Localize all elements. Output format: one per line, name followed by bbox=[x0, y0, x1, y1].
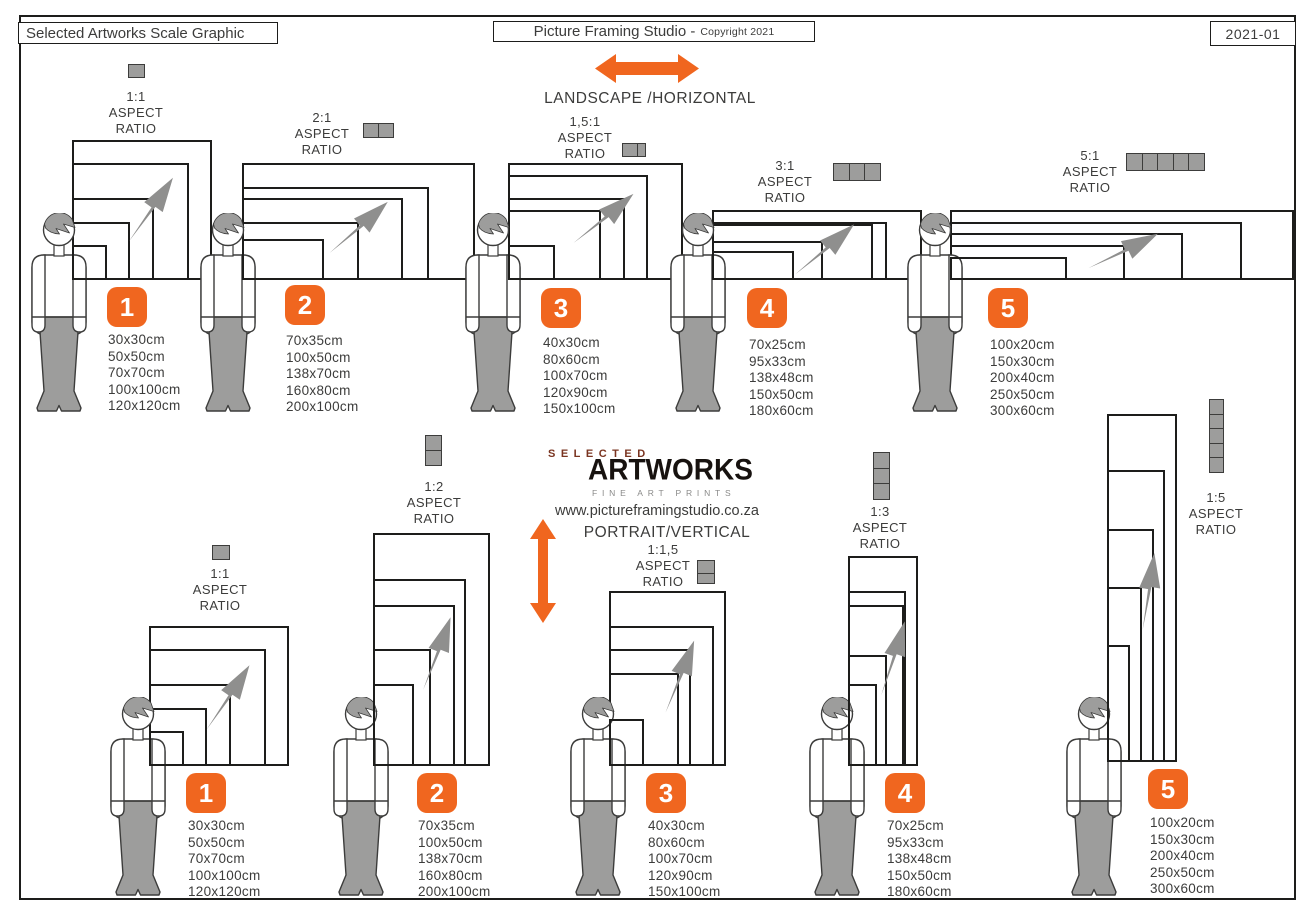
size-item: 70x35cm bbox=[418, 818, 491, 835]
ratio-value: 3:1 bbox=[735, 158, 835, 174]
aspect-ratio-icon bbox=[425, 435, 442, 466]
size-item: 150x30cm bbox=[990, 354, 1055, 371]
group-number-badge: 2 bbox=[285, 285, 325, 325]
size-item: 95x33cm bbox=[749, 354, 814, 371]
ratio-word: RATIO bbox=[830, 536, 930, 552]
size-item: 120x120cm bbox=[188, 884, 261, 901]
frame-rect bbox=[1107, 645, 1130, 762]
size-list: 30x30cm50x50cm70x70cm100x100cm120x120cm bbox=[108, 332, 181, 415]
aspect-word: ASPECT bbox=[830, 520, 930, 536]
size-item: 100x70cm bbox=[543, 368, 616, 385]
size-item: 138x48cm bbox=[887, 851, 952, 868]
size-item: 180x60cm bbox=[749, 403, 814, 420]
size-item: 100x100cm bbox=[108, 382, 181, 399]
size-item: 30x30cm bbox=[188, 818, 261, 835]
ratio-value: 1:1 bbox=[170, 566, 270, 582]
studio-title-box: Picture Framing Studio - Copyright 2021 bbox=[493, 21, 815, 42]
size-list: 100x20cm150x30cm200x40cm250x50cm300x60cm bbox=[990, 337, 1055, 420]
size-item: 50x50cm bbox=[188, 835, 261, 852]
size-item: 150x100cm bbox=[543, 401, 616, 418]
ratio-word: RATIO bbox=[1040, 180, 1140, 196]
size-list: 30x30cm50x50cm70x70cm100x100cm120x120cm bbox=[188, 818, 261, 901]
frame-rect bbox=[609, 719, 644, 766]
size-item: 70x70cm bbox=[108, 365, 181, 382]
size-list: 40x30cm80x60cm100x70cm120x90cm150x100cm bbox=[648, 818, 721, 901]
logo-selected: SELECTED bbox=[548, 448, 651, 460]
size-item: 100x100cm bbox=[188, 868, 261, 885]
size-item: 120x120cm bbox=[108, 398, 181, 415]
ratio-word: RATIO bbox=[170, 598, 270, 614]
aspect-word: ASPECT bbox=[384, 495, 484, 511]
size-item: 80x60cm bbox=[648, 835, 721, 852]
size-item: 150x30cm bbox=[1150, 832, 1215, 849]
aspect-ratio-icon bbox=[212, 545, 230, 560]
group-number-badge: 1 bbox=[107, 287, 147, 327]
size-item: 100x20cm bbox=[990, 337, 1055, 354]
aspect-word: ASPECT bbox=[170, 582, 270, 598]
person-figure bbox=[900, 213, 970, 413]
size-item: 160x80cm bbox=[286, 383, 359, 400]
aspect-word: ASPECT bbox=[86, 105, 186, 121]
portrait-direction-arrow-icon bbox=[528, 517, 558, 625]
aspect-word: ASPECT bbox=[535, 130, 635, 146]
size-list: 70x35cm100x50cm138x70cm160x80cm200x100cm bbox=[286, 333, 359, 416]
frame-rect bbox=[373, 684, 414, 766]
page-title: Selected Artworks Scale Graphic bbox=[26, 25, 244, 42]
aspect-word: ASPECT bbox=[1166, 506, 1266, 522]
portrait-section-label: PORTRAIT/VERTICAL bbox=[557, 524, 777, 542]
ratio-word: RATIO bbox=[384, 511, 484, 527]
ratio-value: 1:5 bbox=[1166, 490, 1266, 506]
aspect-ratio-icon bbox=[1209, 399, 1224, 473]
ratio-word: RATIO bbox=[1166, 522, 1266, 538]
person-figure bbox=[663, 213, 733, 413]
size-item: 200x40cm bbox=[1150, 848, 1215, 865]
ratio-value: 2:1 bbox=[272, 110, 372, 126]
size-item: 95x33cm bbox=[887, 835, 952, 852]
aspect-ratio-icon bbox=[833, 163, 881, 181]
size-item: 300x60cm bbox=[990, 403, 1055, 420]
ratio-word: RATIO bbox=[272, 142, 372, 158]
size-item: 138x70cm bbox=[286, 366, 359, 383]
size-item: 138x70cm bbox=[418, 851, 491, 868]
size-item: 50x50cm bbox=[108, 349, 181, 366]
doc-code: 2021-01 bbox=[1226, 26, 1281, 42]
frame-rect bbox=[712, 251, 794, 280]
logo-subtitle: FINE ART PRINTS bbox=[592, 488, 735, 498]
aspect-word: ASPECT bbox=[1040, 164, 1140, 180]
studio-title: Picture Framing Studio - bbox=[534, 23, 696, 40]
ratio-value: 1:1,5 bbox=[613, 542, 713, 558]
size-list: 70x25cm95x33cm138x48cm150x50cm180x60cm bbox=[887, 818, 952, 901]
frame-rect bbox=[508, 245, 555, 280]
group-number-badge: 3 bbox=[646, 773, 686, 813]
page-canvas: Selected Artworks Scale Graphic Picture … bbox=[0, 0, 1313, 921]
size-item: 100x70cm bbox=[648, 851, 721, 868]
landscape-direction-arrow-icon bbox=[593, 52, 701, 85]
ratio-word: RATIO bbox=[86, 121, 186, 137]
person-figure bbox=[103, 697, 173, 897]
ratio-word: RATIO bbox=[535, 146, 635, 162]
doc-code-box: 2021-01 bbox=[1210, 21, 1296, 46]
size-item: 150x50cm bbox=[887, 868, 952, 885]
size-list: 70x25cm95x33cm138x48cm150x50cm180x60cm bbox=[749, 337, 814, 420]
group-number-badge: 5 bbox=[1148, 769, 1188, 809]
aspect-ratio-icon bbox=[873, 452, 890, 500]
ratio-value: 5:1 bbox=[1040, 148, 1140, 164]
size-item: 300x60cm bbox=[1150, 881, 1215, 898]
group-number-badge: 4 bbox=[747, 288, 787, 328]
aspect-ratio-icon bbox=[128, 64, 145, 78]
size-item: 120x90cm bbox=[648, 868, 721, 885]
frame-rect bbox=[950, 257, 1067, 280]
size-item: 70x70cm bbox=[188, 851, 261, 868]
size-list: 70x35cm100x50cm138x70cm160x80cm200x100cm bbox=[418, 818, 491, 901]
ratio-value: 1,5:1 bbox=[535, 114, 635, 130]
size-item: 150x100cm bbox=[648, 884, 721, 901]
size-item: 180x60cm bbox=[887, 884, 952, 901]
group-number-badge: 1 bbox=[186, 773, 226, 813]
size-list: 40x30cm80x60cm100x70cm120x90cm150x100cm bbox=[543, 335, 616, 418]
group-number-badge: 5 bbox=[988, 288, 1028, 328]
size-item: 70x25cm bbox=[749, 337, 814, 354]
person-figure bbox=[458, 213, 528, 413]
ratio-value: 1:2 bbox=[384, 479, 484, 495]
size-item: 100x50cm bbox=[418, 835, 491, 852]
size-item: 150x50cm bbox=[749, 387, 814, 404]
copyright-text: Copyright 2021 bbox=[700, 26, 774, 38]
size-item: 138x48cm bbox=[749, 370, 814, 387]
size-item: 40x30cm bbox=[543, 335, 616, 352]
size-item: 160x80cm bbox=[418, 868, 491, 885]
size-item: 30x30cm bbox=[108, 332, 181, 349]
frame-rect bbox=[848, 684, 877, 766]
group-number-badge: 4 bbox=[885, 773, 925, 813]
size-item: 40x30cm bbox=[648, 818, 721, 835]
ratio-value: 1:1 bbox=[86, 89, 186, 105]
size-item: 250x50cm bbox=[990, 387, 1055, 404]
landscape-section-label: LANDSCAPE /HORIZONTAL bbox=[540, 90, 760, 108]
aspect-word: ASPECT bbox=[272, 126, 372, 142]
size-list: 100x20cm150x30cm200x40cm250x50cm300x60cm bbox=[1150, 815, 1215, 898]
aspect-word: ASPECT bbox=[613, 558, 713, 574]
size-item: 80x60cm bbox=[543, 352, 616, 369]
size-item: 120x90cm bbox=[543, 385, 616, 402]
website-url: www.pictureframingstudio.co.za bbox=[537, 503, 777, 519]
group-number-badge: 3 bbox=[541, 288, 581, 328]
frame-rect bbox=[149, 731, 184, 766]
size-item: 100x20cm bbox=[1150, 815, 1215, 832]
size-item: 200x100cm bbox=[286, 399, 359, 416]
frame-rect bbox=[72, 245, 107, 280]
ratio-word: RATIO bbox=[735, 190, 835, 206]
page-title-box: Selected Artworks Scale Graphic bbox=[18, 22, 278, 44]
group-number-badge: 2 bbox=[417, 773, 457, 813]
aspect-word: ASPECT bbox=[735, 174, 835, 190]
person-figure bbox=[24, 213, 94, 413]
size-item: 70x25cm bbox=[887, 818, 952, 835]
frame-rect bbox=[242, 239, 324, 280]
size-item: 200x40cm bbox=[990, 370, 1055, 387]
size-item: 200x100cm bbox=[418, 884, 491, 901]
size-item: 100x50cm bbox=[286, 350, 359, 367]
ratio-word: RATIO bbox=[613, 574, 713, 590]
ratio-value: 1:3 bbox=[830, 504, 930, 520]
size-item: 70x35cm bbox=[286, 333, 359, 350]
size-item: 250x50cm bbox=[1150, 865, 1215, 882]
